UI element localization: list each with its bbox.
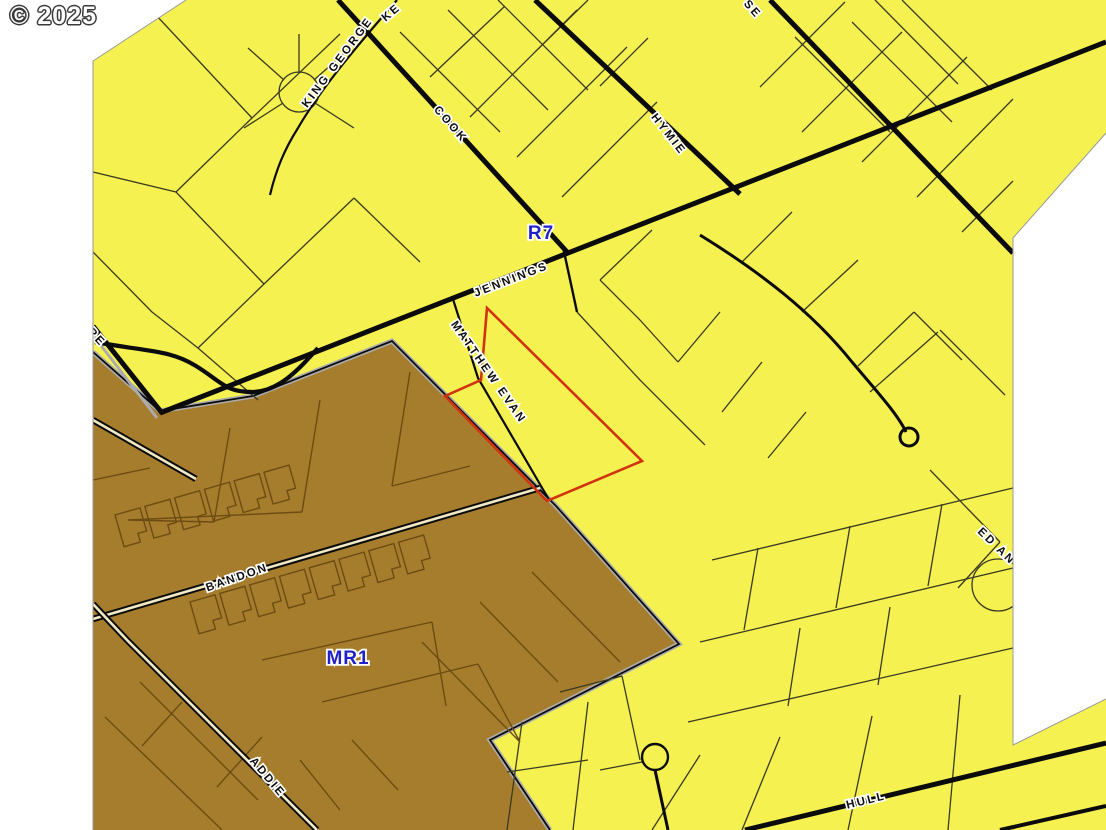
copyright-text: © 2025: [10, 2, 97, 31]
zoning-map-svg: KE KING GEORGE COOK SE HYMIE JENNINGS MA…: [0, 0, 1106, 830]
zone-label-r7: R7: [528, 223, 554, 244]
map-canvas[interactable]: KE KING GEORGE COOK SE HYMIE JENNINGS MA…: [0, 0, 1106, 830]
zone-label-mr1: MR1: [326, 648, 369, 669]
